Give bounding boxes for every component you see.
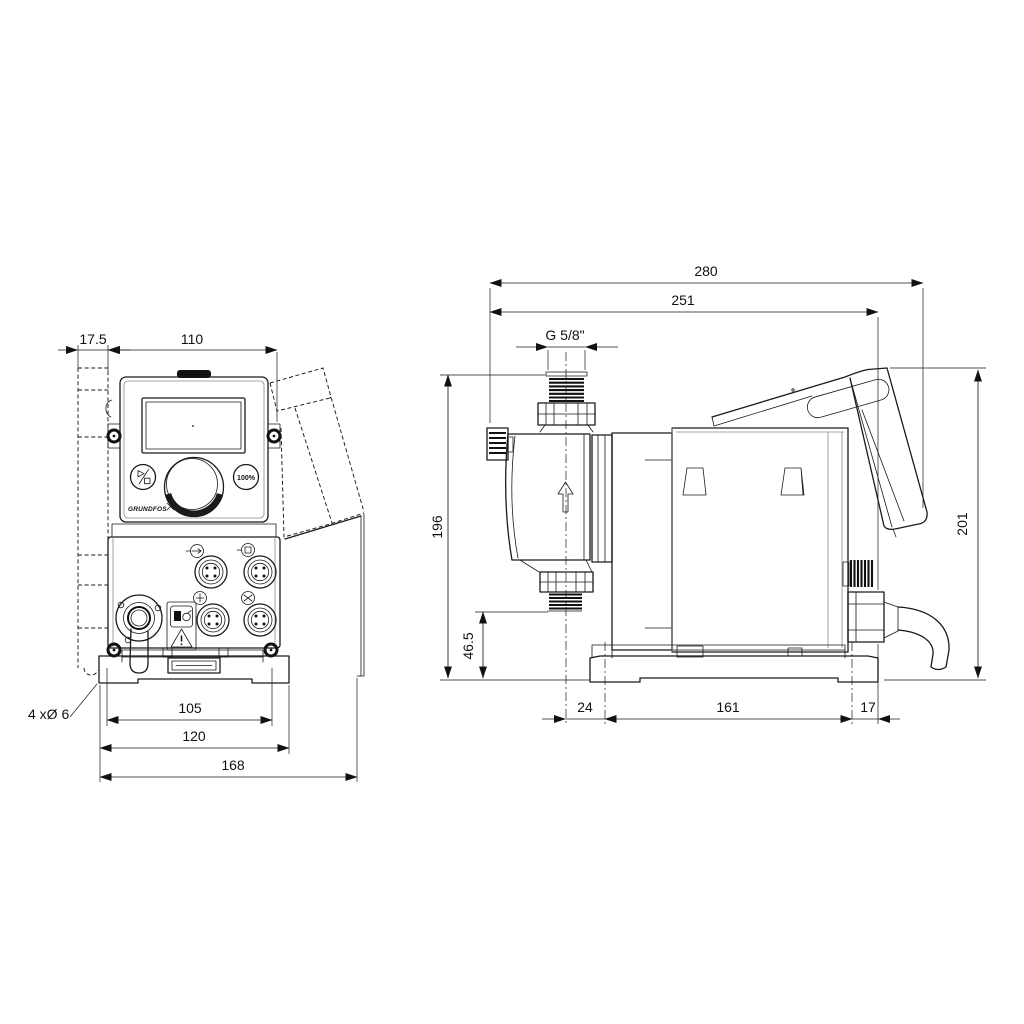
brand-text: GRUNDFOS (128, 506, 167, 513)
connector-function-icon-4 (242, 592, 255, 605)
mounting-base-front (99, 656, 289, 683)
signal-connector-3[interactable] (197, 604, 229, 636)
dim-base-hole-spacing: 161 (605, 699, 852, 719)
dim-text-24: 24 (577, 699, 593, 715)
dim-outlet-height: 46.5 (460, 612, 548, 678)
label-mounting-holes: 4 xØ 6 (28, 706, 69, 722)
side-view: 280 251 G 5/8" 196 46.5 201 (429, 263, 986, 724)
signal-connector-2[interactable] (244, 556, 276, 588)
grundfos-logo: GRUNDFOS (128, 503, 174, 513)
dim-text-17-5: 17.5 (79, 331, 106, 347)
power-cable-front (130, 629, 148, 673)
cable-gland (116, 595, 162, 643)
dim-text-161: 161 (716, 699, 740, 715)
dim-text-120: 120 (182, 728, 206, 744)
deaeration-valve-knob[interactable] (487, 428, 513, 460)
dim-slot-spacing: 105 (107, 668, 272, 726)
mains-connection (843, 560, 949, 670)
dim-text-17: 17 (860, 699, 876, 715)
lcd-display (142, 398, 245, 453)
dim-text-46-5: 46.5 (460, 632, 476, 659)
hood-latch-slot-2 (781, 468, 804, 495)
pump-housing-side (592, 428, 848, 658)
discharge-connection (538, 372, 595, 432)
hood-latch-slot-1 (683, 468, 706, 495)
flow-direction-arrow (558, 482, 573, 512)
signal-connector-4[interactable] (244, 604, 276, 636)
start-stop-button[interactable] (131, 465, 156, 490)
dim-base-rear-offset: 17 (852, 699, 900, 719)
connection-box (108, 524, 280, 673)
dimensional-drawing: 100% GRUNDFOS (0, 0, 1024, 1024)
hood-side (712, 368, 927, 537)
dim-thread-size: G 5/8" (516, 327, 618, 370)
dim-overall-width: 168 (100, 678, 357, 782)
dim-text-280: 280 (694, 263, 718, 279)
bottom-plate (122, 648, 263, 673)
adjustment-knob[interactable] (165, 458, 224, 517)
warning-label (167, 602, 196, 650)
read-manual-icon (171, 606, 193, 627)
dim-text-168: 168 (221, 757, 245, 773)
dim-text-201: 201 (954, 512, 970, 536)
dim-overall-height: 201 (884, 368, 986, 680)
dim-text-196: 196 (429, 515, 445, 539)
dosing-head (487, 428, 593, 611)
hundred-percent-label: 100% (237, 475, 256, 482)
dim-text-110: 110 (181, 331, 204, 347)
dim-text-251: 251 (671, 292, 695, 308)
warning-triangle-icon (171, 629, 192, 647)
front-view: 100% GRUNDFOS (28, 331, 364, 782)
power-cable-side (898, 607, 949, 670)
label-thread-size: G 5/8" (545, 327, 584, 343)
wall-bracket-outline (78, 368, 112, 675)
dim-text-105: 105 (178, 700, 202, 716)
hood-handle-slot (805, 377, 892, 420)
control-panel: 100% GRUNDFOS (108, 370, 280, 522)
start-stop-icon (138, 470, 150, 485)
mounting-holes-callout: 4 xØ 6 (28, 684, 97, 722)
signal-connector-1[interactable] (195, 556, 227, 588)
hundred-percent-button[interactable]: 100% (234, 465, 259, 490)
panel-top-clip (177, 370, 211, 378)
connector-function-icon-2 (237, 544, 255, 557)
hood-outline-dashed (270, 368, 364, 676)
dim-base-front-offset: 24 (542, 699, 605, 719)
connector-function-icon-1 (186, 545, 204, 558)
